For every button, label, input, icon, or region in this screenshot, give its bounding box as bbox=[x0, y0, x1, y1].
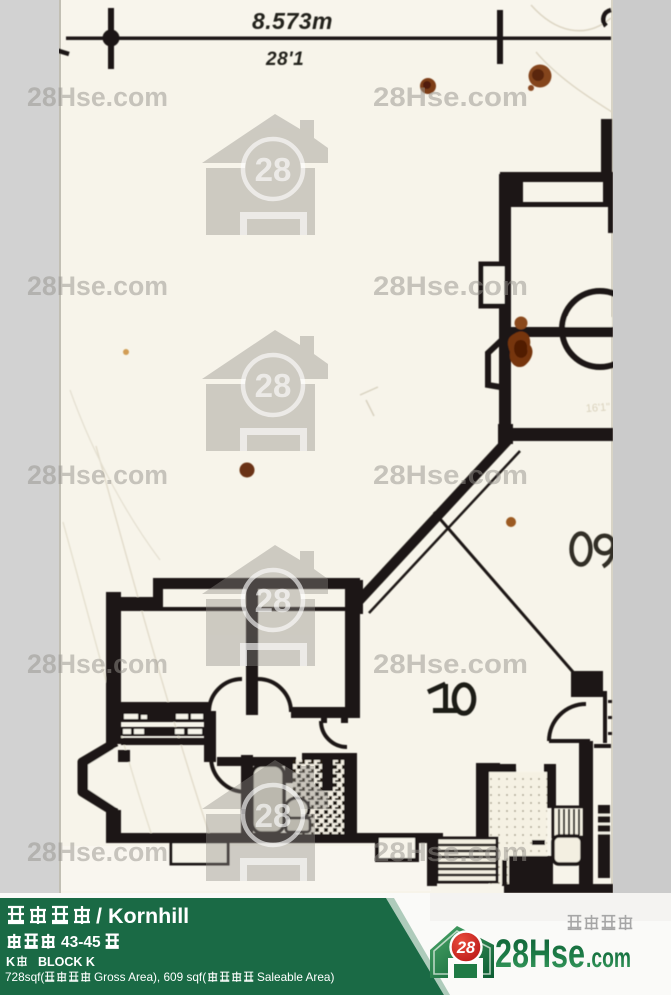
svg-text:/ Kornhill: / Kornhill bbox=[96, 904, 189, 928]
svg-text:43-45: 43-45 bbox=[61, 934, 101, 951]
svg-text:.com: .com bbox=[586, 942, 631, 973]
svg-text:28'1: 28'1 bbox=[265, 49, 304, 70]
svg-text:28Hse.com: 28Hse.com bbox=[373, 271, 528, 301]
svg-text:16'1": 16'1" bbox=[585, 401, 610, 415]
svg-text:BLOCK K: BLOCK K bbox=[38, 955, 95, 969]
svg-text:28Hse.com: 28Hse.com bbox=[373, 649, 528, 679]
svg-text:28Hse.com: 28Hse.com bbox=[27, 271, 168, 301]
svg-text:28Hse.com: 28Hse.com bbox=[373, 837, 528, 867]
svg-text:28Hse.com: 28Hse.com bbox=[27, 649, 168, 679]
svg-text:28Hse.com: 28Hse.com bbox=[27, 837, 168, 867]
svg-text:28: 28 bbox=[456, 939, 476, 957]
svg-text:8.573m: 8.573m bbox=[252, 8, 333, 34]
svg-text:Saleable Area): Saleable Area) bbox=[257, 970, 334, 984]
svg-text:K: K bbox=[6, 955, 15, 969]
svg-text:28Hse.com: 28Hse.com bbox=[27, 460, 168, 490]
svg-text:28Hse.com: 28Hse.com bbox=[373, 82, 528, 112]
svg-text:28Hse: 28Hse bbox=[495, 932, 585, 976]
svg-text:728sqf(: 728sqf( bbox=[5, 970, 44, 984]
svg-text:28Hse.com: 28Hse.com bbox=[27, 82, 168, 112]
svg-text:28Hse.com: 28Hse.com bbox=[373, 460, 528, 490]
svg-text:Gross Area), 609 sqf(: Gross Area), 609 sqf( bbox=[94, 970, 206, 984]
